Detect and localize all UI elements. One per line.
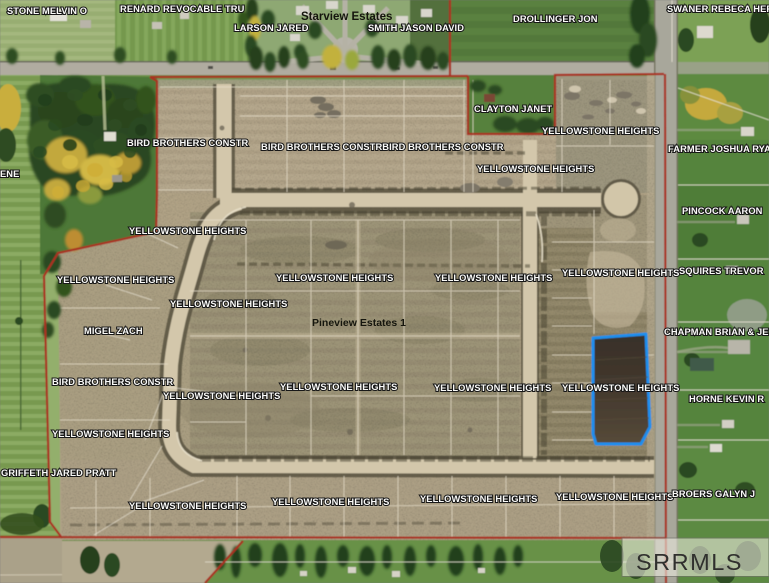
svg-text:LARSON JARED: LARSON JARED [234,23,309,33]
svg-text:YELLOWSTONE HEIGHTS: YELLOWSTONE HEIGHTS [163,391,280,401]
svg-text:YELLOWSTONE HEIGHTS: YELLOWSTONE HEIGHTS [57,275,174,285]
svg-text:STONE MELVIN O: STONE MELVIN O [7,6,87,16]
svg-text:BIRD BROTHERS CONSTR: BIRD BROTHERS CONSTR [127,138,248,148]
svg-text:RENARD REVOCABLE TRU: RENARD REVOCABLE TRU [120,4,245,14]
svg-text:YELLOWSTONE HEIGHTS: YELLOWSTONE HEIGHTS [170,299,287,309]
svg-text:BIRD BROTHERS CONSTR: BIRD BROTHERS CONSTR [52,377,173,387]
svg-text:SMITH JASON DAVID: SMITH JASON DAVID [368,23,464,33]
svg-text:MIGEL ZACH: MIGEL ZACH [84,326,143,336]
svg-text:YELLOWSTONE HEIGHTS: YELLOWSTONE HEIGHTS [272,497,389,507]
svg-text:YELLOWSTONE HEIGHTS: YELLOWSTONE HEIGHTS [562,383,679,393]
svg-text:SWANER REBECA HER: SWANER REBECA HER [667,4,769,14]
svg-text:YELLOWSTONE HEIGHTS: YELLOWSTONE HEIGHTS [420,494,537,504]
svg-text:BIRD BROTHERS CONSTRBIRD BROTH: BIRD BROTHERS CONSTRBIRD BROTHERS CONSTR [261,142,504,152]
svg-text:ENE: ENE [0,169,19,179]
svg-text:YELLOWSTONE HEIGHTS: YELLOWSTONE HEIGHTS [434,383,551,393]
svg-text:YELLOWSTONE HEIGHTS: YELLOWSTONE HEIGHTS [280,382,397,392]
svg-text:Starview Estates: Starview Estates [301,11,392,23]
svg-text:GRIFFETH JARED PRATT: GRIFFETH JARED PRATT [1,468,117,478]
svg-text:YELLOWSTONE HEIGHTS: YELLOWSTONE HEIGHTS [562,268,679,278]
svg-text:YELLOWSTONE HEIGHTS: YELLOWSTONE HEIGHTS [435,273,552,283]
svg-text:SRRMLS: SRRMLS [636,549,743,575]
svg-text:Pineview Estates 1: Pineview Estates 1 [312,317,406,329]
svg-text:CHAPMAN BRIAN & JE: CHAPMAN BRIAN & JE [664,327,769,337]
svg-text:YELLOWSTONE HEIGHTS: YELLOWSTONE HEIGHTS [477,164,594,174]
svg-text:HORNE KEVIN R: HORNE KEVIN R [689,394,764,404]
svg-text:YELLOWSTONE HEIGHTS: YELLOWSTONE HEIGHTS [542,126,659,136]
svg-text:SQUIRES TREVOR: SQUIRES TREVOR [679,266,764,276]
svg-text:PINCOCK AARON: PINCOCK AARON [682,206,763,216]
svg-text:CLAYTON JANET: CLAYTON JANET [474,104,552,114]
svg-text:FARMER JOSHUA RYAN: FARMER JOSHUA RYAN [668,144,769,154]
svg-text:YELLOWSTONE HEIGHTS: YELLOWSTONE HEIGHTS [556,492,673,502]
svg-text:YELLOWSTONE HEIGHTS: YELLOWSTONE HEIGHTS [52,429,169,439]
svg-text:DROLLINGER JON: DROLLINGER JON [513,14,598,24]
svg-text:BROERS GALYN J: BROERS GALYN J [672,489,755,499]
svg-text:YELLOWSTONE HEIGHTS: YELLOWSTONE HEIGHTS [129,226,246,236]
svg-text:YELLOWSTONE HEIGHTS: YELLOWSTONE HEIGHTS [276,273,393,283]
svg-text:YELLOWSTONE HEIGHTS: YELLOWSTONE HEIGHTS [129,501,246,511]
